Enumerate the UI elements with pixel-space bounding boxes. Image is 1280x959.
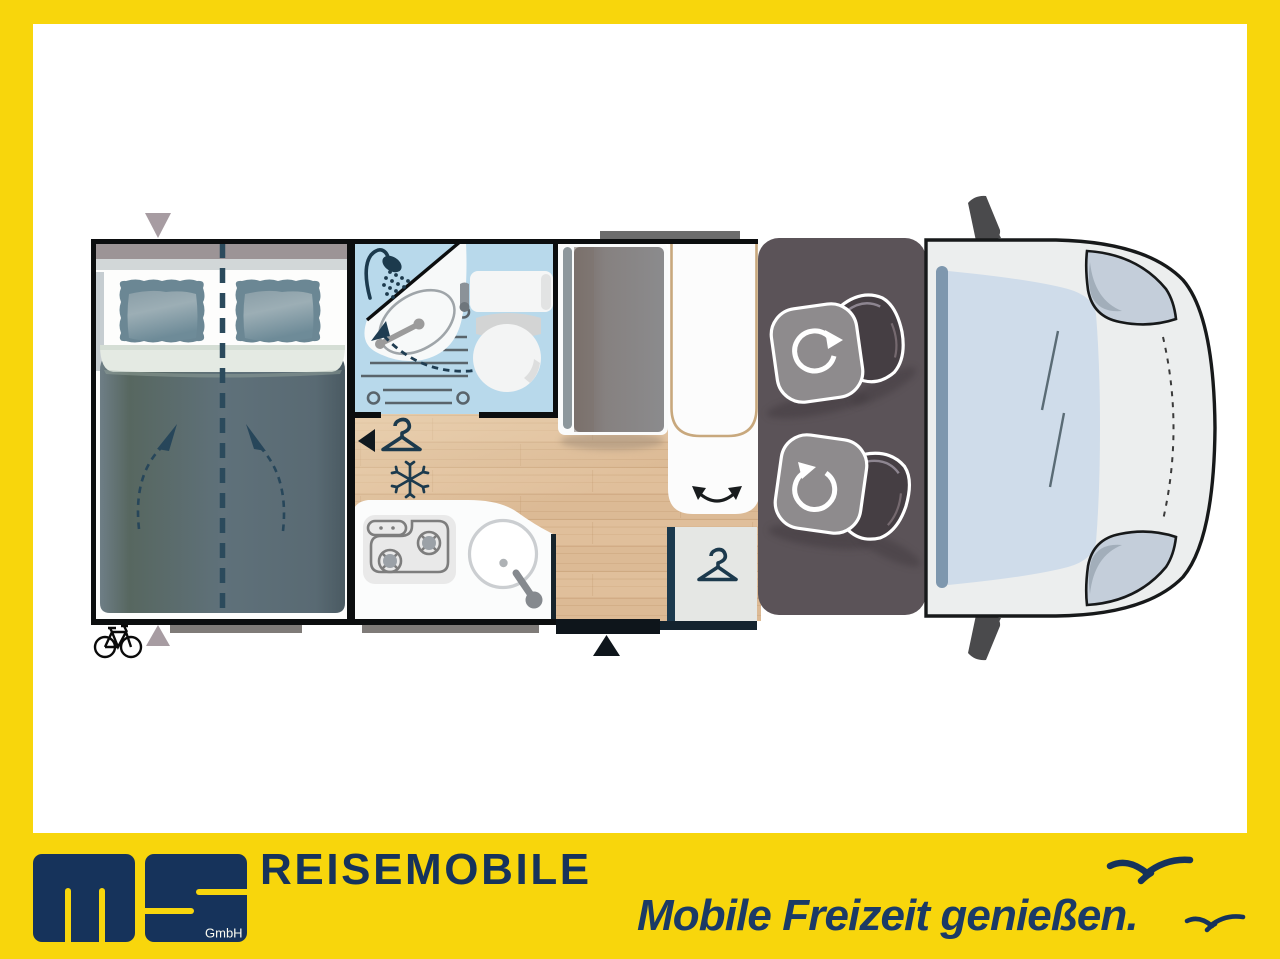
svg-text:GmbH: GmbH — [205, 926, 243, 941]
svg-text:REISEMOBILE: REISEMOBILE — [260, 845, 592, 894]
svg-text:Mobile Freizeit genießen.: Mobile Freizeit genießen. — [637, 891, 1138, 940]
